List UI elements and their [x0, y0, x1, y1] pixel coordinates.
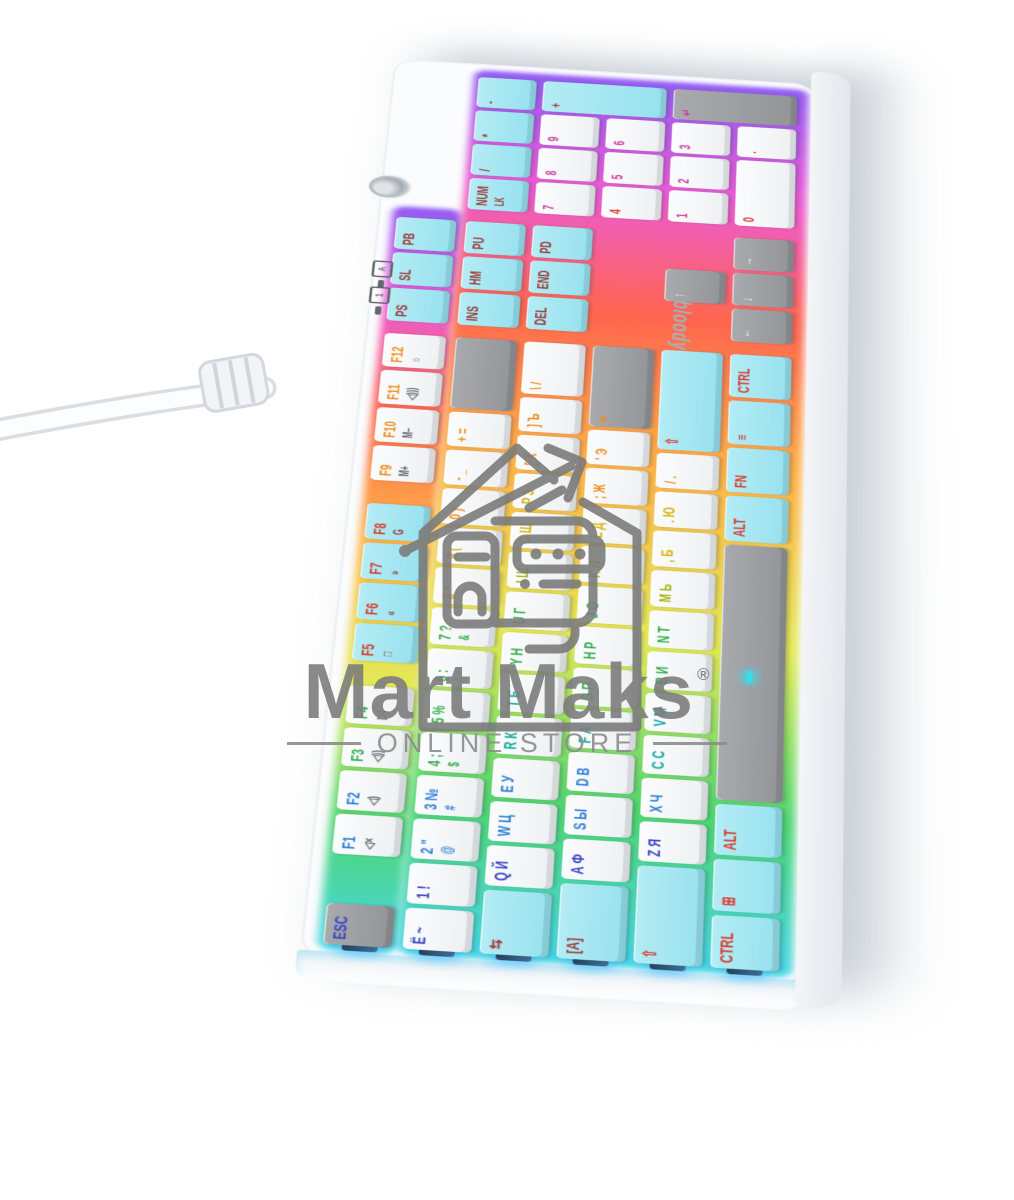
key-equals: + = [447, 411, 512, 449]
key-period: . Ю [654, 491, 719, 530]
keyboard-case: ESCF1◁×F2◁)F3◁))F4▷|F5□F6«F7»F8GF9M+F10M… [299, 59, 815, 988]
num-lock-indicator: 1 [367, 286, 391, 315]
key-x: X Ч [640, 777, 708, 820]
key-np-3: 3 [671, 122, 731, 156]
key-c: C С [642, 735, 710, 778]
caps-lock-icon: A [371, 260, 393, 278]
key-tab: ⇆ [479, 889, 552, 957]
key-esc: ESC [323, 903, 395, 948]
key-np-dot: . [737, 126, 796, 160]
key-win: ⊞ [712, 859, 781, 915]
key-comma: , Б [652, 530, 717, 570]
key-caps-lock: [A] [556, 883, 628, 962]
num-lock-icon: 1 [368, 286, 390, 304]
led-bar [375, 306, 382, 315]
key-2: 2 "@ [410, 818, 481, 862]
key-u: U Г [503, 591, 570, 632]
key-np-9: 9 [539, 114, 600, 148]
key-9: 9 ( [436, 527, 503, 567]
key-o: O Щ [509, 512, 575, 552]
key-f8: F8G [364, 503, 431, 542]
key-q: Q Й [484, 845, 554, 890]
key-p: P З [512, 473, 577, 512]
key-h: H Р [574, 626, 641, 667]
key-backslash: \ / [521, 341, 586, 397]
key-np-0: 0 [735, 160, 796, 229]
caps-lock-indicator: A [370, 260, 393, 289]
key-pause-break: PB [394, 217, 457, 252]
volume-knob [368, 175, 408, 199]
led-bar [377, 280, 384, 289]
key-alt-left: ALT [714, 804, 782, 859]
brand-logo: bloody [664, 300, 694, 351]
key-home: HM [460, 256, 523, 292]
key-ctrl-left: CTRL [710, 915, 780, 972]
key-page-down: PD [531, 225, 593, 260]
key-f3: F3◁)) [341, 727, 411, 770]
key-shift-right: ⇧ [657, 350, 723, 453]
space-led [746, 670, 753, 683]
key-np-1: 1 [668, 190, 729, 225]
key-print-screen: PS [386, 287, 450, 323]
key-6: 6 :^ [426, 648, 494, 690]
key-end: END [528, 260, 591, 296]
key-i: I Ш [506, 551, 572, 591]
key-quote: ' Э [586, 429, 650, 467]
key-np-8: 8 [537, 148, 598, 182]
key-d: D В [566, 751, 635, 794]
key-np-divide: / [470, 144, 532, 178]
key-np-7: 7 [534, 182, 596, 217]
key-f: F А [569, 709, 637, 751]
cable-strain-relief [198, 353, 270, 413]
key-t: T Е [497, 673, 565, 715]
key-f1: F1◁× [332, 813, 403, 857]
key-v: V М [644, 692, 711, 734]
key-np-6: 6 [605, 118, 665, 152]
key-w: W Ц [488, 801, 558, 845]
key-0: 0 ) [440, 488, 506, 527]
key-delete: DEL [526, 296, 589, 332]
key-slash: / . [655, 453, 719, 492]
key-f12: F12☼ [382, 333, 447, 370]
key-scroll-lock: SL [390, 252, 454, 288]
key-bracket-left: [ Х [515, 434, 580, 472]
key-z: Z Я [638, 821, 707, 865]
key-minus: - _ [443, 449, 509, 488]
key-e: E У [491, 758, 560, 801]
key-arrow-left: ← [731, 308, 793, 345]
key-np-2: 2 [669, 156, 729, 190]
key-np-5: 5 [603, 152, 664, 186]
key-l: L Д [581, 506, 646, 545]
key-ctrl-right: CTRL [729, 354, 792, 400]
key-4: 4 ;$ [418, 732, 487, 775]
key-b: B И [646, 651, 713, 692]
key-1: 1 ! [406, 862, 477, 907]
key-k: K Л [579, 545, 645, 585]
key-np-multiply: * [473, 110, 534, 144]
key-menu: ≡ [727, 400, 790, 447]
key-f11: F11◁))) [378, 370, 443, 408]
key-shift-left: ⇧ [633, 865, 705, 967]
key-alt-right: ALT [724, 495, 788, 544]
key-semicolon: ; Ж [584, 467, 649, 506]
product-photo: ESCF1◁×F2◁)F3◁))F4▷|F5□F6«F7»F8GF9M+F10M… [0, 0, 1014, 1200]
key-f9: F9M+ [370, 445, 436, 484]
key-bracket-right: ] Ъ [518, 397, 582, 435]
key-np-minus: - [476, 77, 537, 110]
key-3: 3 №# [414, 775, 484, 818]
key-tilde: Ё ~ [402, 907, 474, 953]
key-np-4: 4 [601, 186, 662, 221]
key-f10: F10M− [374, 407, 440, 445]
key-space [716, 544, 788, 803]
key-num-lock: NUMLK [467, 178, 529, 213]
key-insert: INS [457, 292, 521, 328]
key-f4: F4▷| [345, 685, 414, 727]
key-fn: FN [726, 447, 790, 495]
key-n: N Т [648, 610, 714, 651]
key-5: 5 % [422, 689, 491, 731]
key-f7: F7» [360, 542, 427, 582]
key-m: M Ь [650, 570, 716, 610]
key-page-up: PU [463, 221, 526, 256]
key-j: J О [577, 585, 643, 626]
key-arrow-down: ↓ [732, 273, 793, 309]
key-enter: ↵ [588, 345, 654, 429]
key-y: Y Н [500, 632, 568, 673]
key-f5: F5□ [352, 623, 421, 664]
key-s: S Ы [564, 794, 633, 838]
keyboard: ESCF1◁×F2◁)F3◁))F4▷|F5□F6«F7»F8GF9M+F10M… [299, 59, 815, 988]
key-8: 8 * [433, 567, 500, 607]
key-f2: F2◁) [337, 770, 408, 813]
key-arrow-right: → [733, 237, 794, 273]
key-f6: F6« [356, 582, 424, 623]
key-r: R К [494, 715, 563, 758]
key-backspace: ← [450, 337, 517, 411]
usb-cable [0, 322, 300, 502]
key-7: 7 ?& [429, 607, 497, 648]
key-g: G П [572, 667, 639, 709]
key-a: A Ф [561, 838, 631, 882]
